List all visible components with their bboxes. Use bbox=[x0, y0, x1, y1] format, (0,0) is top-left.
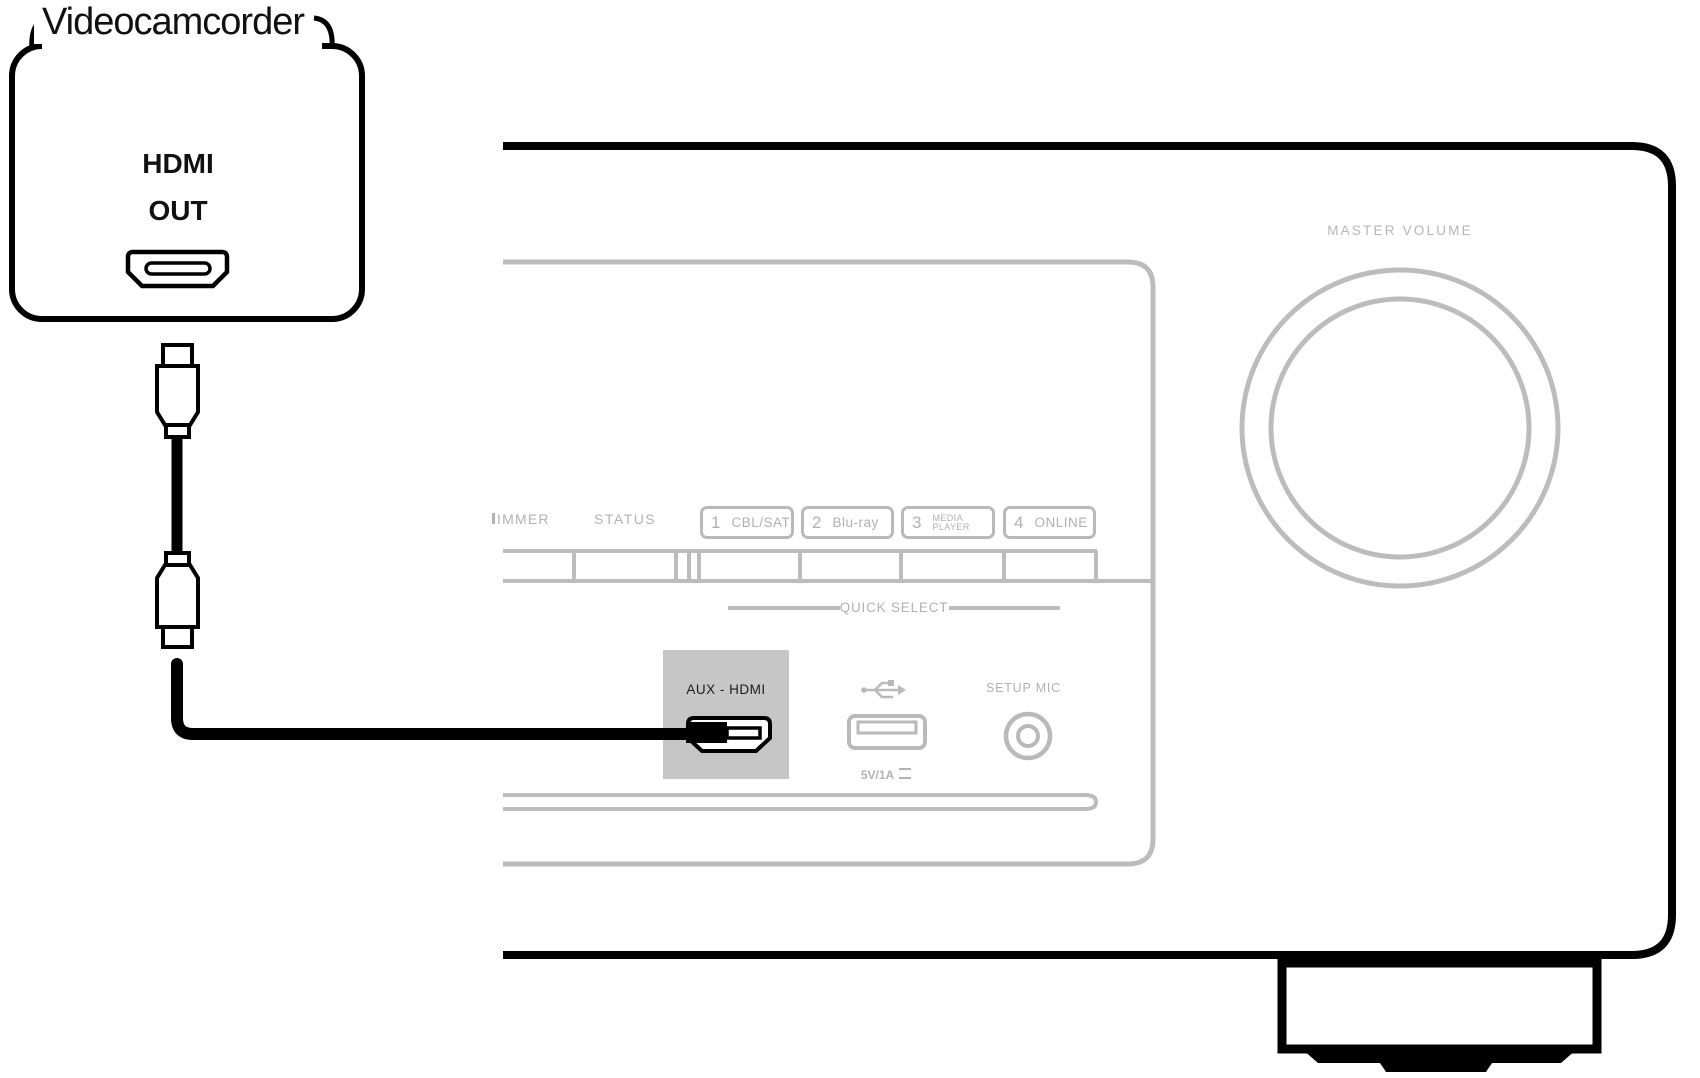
quick-select-button-2: 2 Blu-ray bbox=[801, 506, 894, 539]
receiver-foot bbox=[1282, 963, 1597, 1072]
quick-select-title: QUICK SELECT bbox=[819, 600, 969, 615]
status-label: STATUS bbox=[594, 511, 656, 527]
quick-select-button-4: 4 ONLINE bbox=[1003, 506, 1096, 539]
aux-hdmi-highlight bbox=[663, 650, 789, 779]
quick-select-3-number: 3 bbox=[912, 513, 921, 533]
usb-power-label: 5V/1A bbox=[834, 768, 938, 782]
hdmi-out-port-icon bbox=[128, 252, 227, 286]
hdmi-out-label-line1: HDMI bbox=[116, 148, 240, 180]
quick-select-2-label: Blu-ray bbox=[832, 515, 878, 530]
aux-hdmi-label: AUX - HDMI bbox=[661, 682, 791, 697]
quick-select-4-label: ONLINE bbox=[1034, 515, 1087, 530]
hdmi-plug-lower bbox=[157, 553, 198, 647]
hdmi-plug-upper bbox=[157, 345, 198, 437]
clipped-dimmer-glyph bbox=[492, 513, 495, 524]
inserted-plug-body bbox=[686, 722, 727, 743]
quick-select-2-number: 2 bbox=[812, 513, 821, 533]
quick-select-3-label: MEDIA PLAYER bbox=[932, 514, 969, 531]
quick-select-button-3: 3 MEDIA PLAYER bbox=[901, 506, 995, 539]
dimmer-label: IMMER bbox=[497, 511, 550, 527]
inserted-plug-tongue bbox=[727, 728, 760, 738]
dc-power-icon bbox=[899, 768, 911, 779]
quick-select-4-number: 4 bbox=[1014, 513, 1023, 533]
quick-select-button-1: 1 CBL/SAT bbox=[700, 506, 794, 539]
master-volume-knob bbox=[1242, 270, 1558, 586]
connection-diagram: Videocamcorder HDMI OUT MASTER VOLUME IM… bbox=[0, 0, 1700, 1078]
diagram-artwork bbox=[0, 0, 1700, 1078]
videocamcorder-title: Videocamcorder bbox=[34, 1, 312, 44]
receiver-front-panel bbox=[503, 146, 1672, 1072]
quick-select-1-number: 1 bbox=[711, 513, 720, 533]
usb-port bbox=[849, 716, 925, 748]
setup-mic-label: SETUP MIC bbox=[951, 681, 1096, 695]
master-volume-label: MASTER VOLUME bbox=[1290, 223, 1510, 238]
quick-select-1-label: CBL/SAT bbox=[731, 515, 790, 530]
setup-mic-jack bbox=[1006, 714, 1050, 758]
hdmi-out-label-line2: OUT bbox=[116, 195, 240, 227]
